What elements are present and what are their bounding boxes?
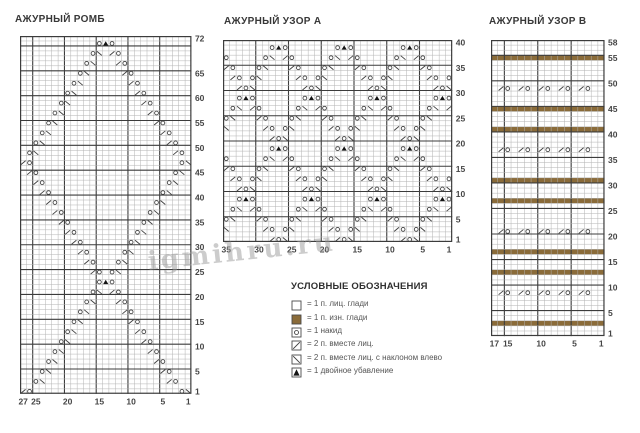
yarn-over-symbol — [129, 310, 133, 314]
yarn-over-symbol — [257, 207, 261, 211]
k2tog-symbol — [302, 86, 307, 90]
ssk-symbol — [77, 81, 82, 85]
yarn-over-symbol — [322, 207, 326, 211]
yarn-over-symbol — [401, 126, 405, 130]
k2tog-symbol — [559, 291, 564, 295]
row-number-label: 5 — [194, 366, 199, 376]
ssk-symbol — [322, 76, 327, 80]
row-number-label: 10 — [455, 189, 465, 199]
k2tog-symbol — [122, 71, 127, 75]
yarn-over-symbol — [586, 148, 590, 152]
k2tog-symbol — [559, 148, 564, 152]
k2tog-symbol — [230, 76, 235, 80]
yarn-over-symbol — [135, 81, 139, 85]
yarn-over-symbol — [148, 101, 152, 105]
yarn-over-symbol — [110, 270, 114, 274]
row-number-label: 1 — [194, 386, 199, 396]
ssk-symbol — [116, 270, 121, 274]
yarn-over-symbol — [355, 217, 359, 221]
ssk-symbol — [52, 121, 57, 125]
yarn-over-symbol — [368, 177, 372, 181]
ssk-symbol — [302, 106, 307, 110]
row-number-label: 50 — [608, 78, 618, 88]
ssk-symbol — [289, 227, 294, 231]
ssk-symbol — [295, 217, 300, 221]
row-number-label: 72 — [194, 33, 204, 43]
legend-item: = 1 п. лиц. глади — [291, 297, 442, 310]
row-number-label: 65 — [194, 68, 204, 78]
ssk-symbol — [263, 66, 268, 70]
yarn-over-symbol — [33, 380, 37, 384]
yarn-over-symbol — [276, 137, 280, 141]
yarn-over-symbol — [148, 211, 152, 215]
yarn-over-symbol — [180, 161, 184, 165]
yarn-over-symbol — [84, 300, 88, 304]
yarn-over-symbol — [283, 227, 287, 231]
legend-item-text: = 1 п. изн. глади — [307, 313, 367, 322]
yarn-over-symbol — [59, 211, 63, 215]
yarn-over-symbol — [97, 280, 101, 284]
yarn-over-symbol — [78, 310, 82, 314]
ssk-symbol — [289, 126, 294, 130]
purl-row — [491, 270, 605, 275]
legend-item: = 2 п. вместе лиц. с наклоном влево — [291, 351, 442, 364]
ssk-symbol — [322, 177, 327, 181]
yarn-over-symbol — [586, 291, 590, 295]
k2tog-symbol — [579, 87, 584, 91]
yarn-over-symbol — [40, 181, 44, 185]
purl-row — [491, 55, 605, 60]
purl-row — [491, 178, 605, 183]
yarn-over-symbol — [322, 167, 326, 171]
yarn-over-symbol — [361, 207, 365, 211]
k2tog-symbol — [328, 227, 333, 231]
legend-item: = 1 накид — [291, 324, 442, 337]
yarn-over-symbol — [129, 240, 133, 244]
ssk-symbol — [367, 207, 372, 211]
k2tog-symbol — [539, 229, 544, 233]
ssk-symbol — [141, 230, 146, 234]
stitch-number-label: 5 — [572, 339, 577, 349]
ssk-symbol — [367, 106, 372, 110]
row-number-label: 25 — [194, 267, 204, 277]
k2tog-symbol — [499, 229, 504, 233]
yarn-over-symbol — [116, 260, 120, 264]
ssk-symbol — [315, 187, 320, 191]
symbol-legend: УСЛОВНЫЕ ОБОЗНАЧЕНИЯ = 1 п. лиц. глади= … — [291, 281, 442, 377]
stitch-number-label: 35 — [221, 245, 231, 255]
yarn-over-symbol — [302, 96, 306, 100]
k2tog-symbol — [141, 101, 146, 105]
ssk-symbol — [122, 260, 127, 264]
yarn-over-symbol — [257, 106, 261, 110]
yarn-over-symbol — [230, 167, 234, 171]
stitch-number-label: 15 — [94, 396, 104, 406]
yarn-over-symbol — [59, 340, 63, 344]
row-number-label: 35 — [194, 217, 204, 227]
yarn-over-symbol — [110, 42, 114, 46]
stitch-number-label: 25 — [31, 396, 41, 406]
yarn-over-symbol — [263, 217, 267, 221]
yarn-over-symbol — [135, 320, 139, 324]
yarn-over-symbol — [440, 86, 444, 90]
double-decrease-symbol — [308, 96, 313, 100]
legend-item: = 1 двойное убавление — [291, 364, 442, 377]
row-number-label: 30 — [608, 180, 618, 190]
k2tog-symbol — [348, 56, 353, 60]
k2tog-symbol — [20, 161, 25, 165]
ssk-symbol — [433, 207, 438, 211]
ssk-symbol — [90, 300, 95, 304]
ssk-symbol — [236, 106, 241, 110]
yarn-over-symbol — [237, 177, 241, 181]
yarn-over-symbol — [283, 126, 287, 130]
yarn-over-symbol — [53, 111, 57, 115]
row-number-label: 10 — [194, 342, 204, 352]
yarn-over-symbol — [447, 197, 451, 201]
yarn-over-symbol — [160, 191, 164, 195]
ssk-symbol — [394, 66, 399, 70]
yarn-over-symbol — [309, 86, 313, 90]
ssk-symbol — [387, 76, 392, 80]
legend-icon-ssk — [291, 352, 303, 363]
yarn-over-symbol — [335, 126, 339, 130]
yarn-over-symbol — [546, 148, 550, 152]
yarn-over-symbol — [283, 147, 287, 151]
k2tog-symbol — [539, 291, 544, 295]
row-number-label: 60 — [194, 93, 204, 103]
yarn-over-symbol — [135, 230, 139, 234]
ssk-symbol — [400, 157, 405, 161]
k2tog-symbol — [579, 229, 584, 233]
ssk-symbol — [46, 131, 51, 135]
yarn-over-symbol — [433, 96, 437, 100]
yarn-over-symbol — [329, 56, 333, 60]
stitch-number-label: 5 — [420, 245, 425, 255]
yarn-over-symbol — [65, 91, 69, 95]
k2tog-symbol — [559, 87, 564, 91]
yarn-over-symbol — [289, 157, 293, 161]
k2tog-symbol — [413, 56, 418, 60]
yarn-over-symbol — [566, 87, 570, 91]
yarn-over-symbol — [348, 147, 352, 151]
yarn-over-symbol — [270, 126, 274, 130]
ssk-symbol — [179, 171, 184, 175]
yarn-over-symbol — [401, 46, 405, 50]
yarn-over-symbol — [381, 76, 385, 80]
row-number-label: 1 — [608, 329, 613, 339]
yarn-over-symbol — [237, 197, 241, 201]
yarn-over-symbol — [447, 76, 451, 80]
k2tog-symbol — [559, 229, 564, 233]
k2tog-symbol — [519, 291, 524, 295]
yarn-over-symbol — [566, 148, 570, 152]
legend-icon-purl — [291, 312, 303, 323]
double-decrease-symbol — [374, 96, 379, 100]
k2tog-symbol — [367, 86, 372, 90]
yarn-over-symbol — [381, 96, 385, 100]
k2tog-symbol — [109, 51, 114, 55]
yarn-over-symbol — [263, 157, 267, 161]
ssk-symbol — [433, 106, 438, 110]
k2tog-symbol — [58, 220, 63, 224]
double-decrease-symbol — [103, 280, 108, 284]
k2tog-symbol — [52, 210, 57, 214]
yarn-over-symbol — [78, 71, 82, 75]
chart-title-uzor-a: АЖУРНЫЙ УЗОР А — [224, 16, 321, 27]
row-number-label: 55 — [194, 118, 204, 128]
legend-icon-yo — [291, 325, 303, 336]
yarn-over-symbol — [167, 131, 171, 135]
k2tog-symbol — [361, 177, 366, 181]
yarn-over-symbol — [283, 46, 287, 50]
ssk-symbol — [295, 116, 300, 120]
yarn-over-symbol — [546, 230, 550, 234]
yarn-over-symbol — [566, 291, 570, 295]
yarn-over-symbol — [309, 187, 313, 191]
ssk-symbol — [160, 200, 165, 204]
k2tog-symbol — [160, 131, 165, 135]
k2tog-symbol — [160, 369, 165, 373]
yarn-over-symbol — [33, 171, 37, 175]
yarn-over-symbol — [420, 56, 424, 60]
ssk-symbol — [96, 290, 101, 294]
yarn-over-symbol — [84, 61, 88, 65]
yarn-over-symbol — [116, 51, 120, 55]
ssk-symbol — [269, 157, 274, 161]
yarn-over-symbol — [148, 340, 152, 344]
yarn-over-symbol — [270, 227, 274, 231]
yarn-over-symbol — [40, 370, 44, 374]
yarn-over-symbol — [401, 147, 405, 151]
row-number-label: 35 — [455, 63, 465, 73]
ssk-symbol — [166, 191, 171, 195]
yarn-over-symbol — [296, 66, 300, 70]
yarn-over-symbol — [289, 217, 293, 221]
stitch-number-label: 1 — [185, 396, 190, 406]
k2tog-symbol — [256, 116, 261, 120]
legend-item: = 1 п. изн. глади — [291, 310, 442, 323]
stitch-number-label: 15 — [352, 245, 362, 255]
k2tog-symbol — [154, 360, 159, 364]
legend-item-text: = 1 двойное убавление — [307, 366, 393, 375]
yarn-over-symbol — [420, 116, 424, 120]
yarn-over-symbol — [289, 116, 293, 120]
k2tog-symbol — [135, 91, 140, 95]
row-number-label: 40 — [608, 129, 618, 139]
legend-item-text: = 2 п. вместе лиц. — [307, 339, 374, 348]
k2tog-symbol — [141, 340, 146, 344]
ssk-symbol — [71, 91, 76, 95]
yarn-over-symbol — [586, 230, 590, 234]
yarn-over-symbol — [53, 201, 57, 205]
k2tog-symbol — [394, 126, 399, 130]
k2tog-symbol — [539, 148, 544, 152]
ssk-symbol — [185, 161, 190, 165]
purl-row — [491, 321, 605, 326]
k2tog-symbol — [446, 207, 451, 211]
double-decrease-symbol — [276, 45, 281, 49]
row-number-label: 1 — [455, 234, 460, 244]
k2tog-symbol — [295, 76, 300, 80]
k2tog-symbol — [354, 167, 359, 171]
yarn-over-symbol — [122, 250, 126, 254]
ssk-symbol — [33, 151, 38, 155]
yarn-over-symbol — [427, 66, 431, 70]
yarn-over-symbol — [335, 46, 339, 50]
yarn-over-symbol — [414, 126, 418, 130]
yarn-over-symbol — [154, 350, 158, 354]
ssk-symbol — [77, 320, 82, 324]
ssk-symbol — [58, 111, 63, 115]
ssk-symbol — [426, 116, 431, 120]
yarn-over-symbol — [394, 157, 398, 161]
yarn-over-symbol — [289, 56, 293, 60]
yarn-over-symbol — [33, 141, 37, 145]
k2tog-symbol — [499, 291, 504, 295]
yarn-over-symbol — [296, 207, 300, 211]
k2tog-symbol — [33, 181, 38, 185]
yarn-over-symbol — [329, 157, 333, 161]
yarn-over-symbol — [302, 177, 306, 181]
yarn-over-symbol — [230, 106, 234, 110]
yarn-over-symbol — [368, 76, 372, 80]
ssk-symbol — [39, 379, 44, 383]
ssk-symbol — [420, 126, 425, 130]
ssk-symbol — [282, 136, 287, 140]
yarn-over-symbol — [91, 51, 95, 55]
yarn-over-symbol — [72, 320, 76, 324]
k2tog-symbol — [328, 126, 333, 130]
yarn-over-symbol — [91, 260, 95, 264]
legend-title: УСЛОВНЫЕ ОБОЗНАЧЕНИЯ — [291, 281, 442, 292]
k2tog-symbol — [116, 61, 121, 65]
stitch-number-label: 25 — [287, 245, 297, 255]
yarn-over-symbol — [59, 101, 63, 105]
yarn-over-symbol — [40, 131, 44, 135]
yarn-over-symbol — [335, 147, 339, 151]
yarn-over-symbol — [27, 151, 31, 155]
yarn-over-symbol — [230, 207, 234, 211]
yarn-over-symbol — [447, 177, 451, 181]
legend-items: = 1 п. лиц. глади= 1 п. изн. глади= 1 на… — [291, 297, 442, 377]
ssk-symbol — [381, 86, 386, 90]
yarn-over-symbol — [526, 291, 530, 295]
k2tog-symbol — [46, 200, 51, 204]
yarn-over-symbol — [296, 167, 300, 171]
row-number-label: 5 — [608, 308, 613, 318]
yarn-over-symbol — [388, 66, 392, 70]
ssk-symbol — [256, 177, 261, 181]
yarn-over-symbol — [394, 56, 398, 60]
k2tog-symbol — [426, 177, 431, 181]
yarn-over-symbol — [316, 197, 320, 201]
k2tog-symbol — [84, 260, 89, 264]
yarn-over-symbol — [46, 121, 50, 125]
k2tog-symbol — [65, 230, 70, 234]
k2tog-symbol — [420, 167, 425, 171]
ssk-symbol — [223, 227, 228, 231]
yarn-over-symbol — [244, 187, 248, 191]
yarn-over-symbol — [329, 217, 333, 221]
yarn-over-symbol — [407, 137, 411, 141]
k2tog-symbol — [315, 106, 320, 110]
yarn-over-symbol — [546, 291, 550, 295]
double-decrease-symbol — [407, 45, 412, 49]
k2tog-symbol — [269, 136, 274, 140]
ssk-symbol — [381, 187, 386, 191]
k2tog-symbol — [282, 157, 287, 161]
k2tog-symbol — [250, 106, 255, 110]
chart-grid-uzor-b: 58555045403530252015105117151051 — [491, 40, 631, 352]
yarn-over-symbol — [224, 217, 228, 221]
legend-item-text: = 1 п. лиц. глади — [307, 299, 369, 308]
k2tog-symbol — [302, 187, 307, 191]
yarn-over-symbol — [122, 61, 126, 65]
k2tog-symbol — [579, 291, 584, 295]
ssk-symbol — [426, 217, 431, 221]
row-number-label: 45 — [194, 168, 204, 178]
yarn-over-symbol — [250, 96, 254, 100]
k2tog-symbol — [289, 66, 294, 70]
yarn-over-symbol — [348, 126, 352, 130]
ssk-symbol — [256, 76, 261, 80]
k2tog-symbol — [348, 157, 353, 161]
stitch-number-label: 20 — [319, 245, 329, 255]
yarn-over-symbol — [586, 87, 590, 91]
yarn-over-symbol — [141, 91, 145, 95]
k2tog-symbol — [433, 187, 438, 191]
yarn-over-symbol — [526, 230, 530, 234]
purl-row — [491, 198, 605, 203]
ssk-symbol — [348, 136, 353, 140]
ssk-symbol — [335, 56, 340, 60]
yarn-over-symbol — [329, 116, 333, 120]
yarn-over-symbol — [263, 56, 267, 60]
yarn-over-symbol — [316, 96, 320, 100]
stitch-number-label: 17 — [490, 339, 500, 349]
row-number-label: 55 — [608, 53, 618, 63]
ssk-symbol — [84, 310, 89, 314]
yarn-over-symbol — [250, 76, 254, 80]
k2tog-symbol — [173, 151, 178, 155]
yarn-over-symbol — [414, 227, 418, 231]
yarn-over-symbol — [97, 42, 101, 46]
yarn-over-symbol — [65, 220, 69, 224]
yarn-over-symbol — [257, 167, 261, 171]
yarn-over-symbol — [72, 81, 76, 85]
chart-grid-uzor-a: 403530252015105135302520151051 — [223, 40, 478, 258]
k2tog-symbol — [413, 157, 418, 161]
k2tog-symbol — [282, 56, 287, 60]
double-decrease-symbol — [374, 197, 379, 201]
ssk-symbol — [84, 71, 89, 75]
yarn-over-symbol — [361, 106, 365, 110]
yarn-over-symbol — [116, 290, 120, 294]
k2tog-symbol — [236, 86, 241, 90]
row-number-label: 40 — [455, 38, 465, 48]
k2tog-symbol — [400, 136, 405, 140]
row-number-label: 20 — [194, 292, 204, 302]
yarn-over-symbol — [244, 86, 248, 90]
k2tog-symbol — [433, 86, 438, 90]
double-decrease-symbol — [341, 146, 346, 150]
yarn-over-symbol — [447, 96, 451, 100]
ssk-symbol — [230, 217, 235, 221]
yarn-over-symbol — [263, 116, 267, 120]
row-number-label: 30 — [455, 88, 465, 98]
yarn-over-symbol — [433, 76, 437, 80]
